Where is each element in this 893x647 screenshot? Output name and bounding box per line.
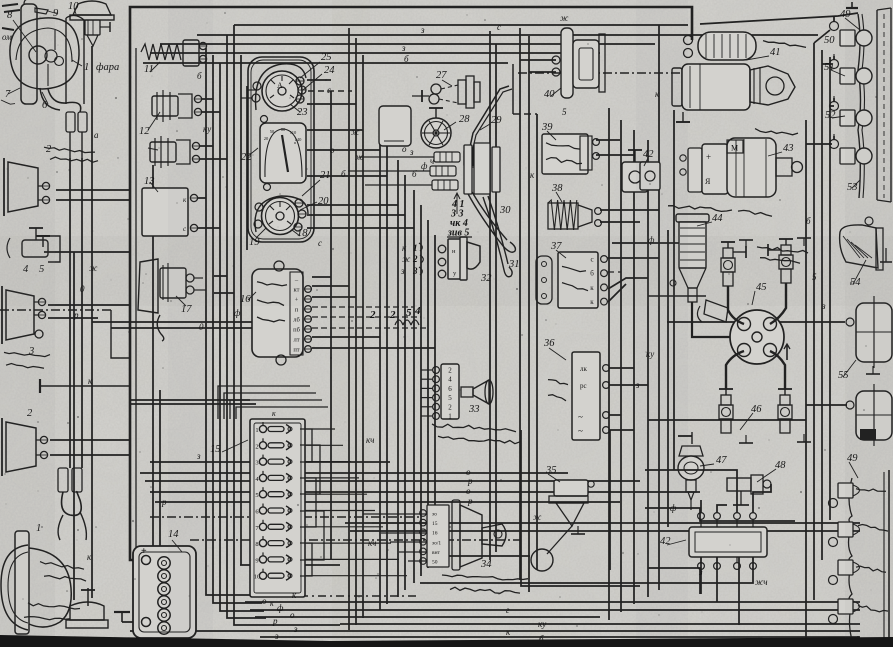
svg-text:23: 23 xyxy=(297,107,308,118)
svg-text:ф: ф xyxy=(277,603,284,613)
svg-text:р: р xyxy=(161,497,167,507)
svg-text:лт: лт xyxy=(293,337,299,344)
svg-text:36: 36 xyxy=(543,338,555,349)
svg-text:~: ~ xyxy=(578,426,583,436)
svg-text:фара: фара xyxy=(96,62,119,73)
svg-text:15: 15 xyxy=(432,521,438,527)
svg-text:лк: лк xyxy=(580,365,587,373)
svg-text:2: 2 xyxy=(448,367,452,375)
svg-text:10: 10 xyxy=(68,1,79,12)
svg-text:М: М xyxy=(731,144,738,153)
svg-text:Я: Я xyxy=(705,177,711,186)
svg-text:з: з xyxy=(409,147,414,157)
svg-text:2: 2 xyxy=(369,309,376,321)
svg-text:48: 48 xyxy=(775,460,786,471)
svg-text:35: 35 xyxy=(545,465,557,476)
svg-text:з: з xyxy=(293,624,298,634)
svg-text:2: 2 xyxy=(389,309,396,321)
svg-text:12: 12 xyxy=(139,126,150,137)
svg-text:р: р xyxy=(467,476,473,486)
svg-text:р: р xyxy=(467,496,473,506)
svg-text:к: к xyxy=(270,599,274,608)
svg-text:21: 21 xyxy=(320,170,331,181)
svg-text:с: с xyxy=(497,22,501,32)
svg-text:+: + xyxy=(141,546,147,557)
svg-text:г: г xyxy=(506,605,510,615)
svg-text:о: о xyxy=(262,596,267,606)
svg-text:41: 41 xyxy=(770,47,781,58)
svg-text:ф: ф xyxy=(234,308,241,318)
svg-text:пб: пб xyxy=(293,327,300,334)
svg-text:4: 4 xyxy=(448,376,452,384)
svg-text:50: 50 xyxy=(432,560,438,566)
svg-text:30: 30 xyxy=(499,205,511,216)
svg-text:110: 110 xyxy=(290,130,297,135)
svg-text:~: ~ xyxy=(578,412,583,422)
svg-text:5: 5 xyxy=(255,492,258,499)
svg-text:жч: жч xyxy=(755,577,768,587)
svg-text:2: 2 xyxy=(448,403,452,411)
svg-text:50: 50 xyxy=(270,129,275,134)
svg-text:80: 80 xyxy=(281,127,286,132)
svg-text:р: р xyxy=(73,310,79,320)
svg-text:16: 16 xyxy=(432,531,438,537)
svg-text:ч: ч xyxy=(430,156,434,166)
svg-text:52: 52 xyxy=(825,110,836,121)
svg-text:рс: рс xyxy=(580,382,587,390)
svg-text:+: + xyxy=(706,152,711,162)
svg-text:50: 50 xyxy=(824,35,835,46)
svg-text:20: 20 xyxy=(318,196,329,207)
svg-text:б: б xyxy=(412,169,417,179)
svg-text:ку: ку xyxy=(538,619,546,629)
svg-text:о: о xyxy=(466,486,471,496)
svg-text:8: 8 xyxy=(255,541,258,548)
svg-text:зо/1: зо/1 xyxy=(432,540,441,546)
svg-text:с: с xyxy=(327,85,331,95)
svg-text:з: з xyxy=(274,631,279,641)
svg-text:140: 140 xyxy=(295,137,303,142)
svg-text:6: 6 xyxy=(448,385,452,393)
svg-text:к: к xyxy=(272,409,276,418)
svg-text:а: а xyxy=(94,130,99,140)
svg-text:47: 47 xyxy=(716,455,727,466)
svg-text:б: б xyxy=(404,54,409,64)
svg-text:28: 28 xyxy=(459,114,470,125)
svg-text:25: 25 xyxy=(321,52,332,63)
svg-text:33: 33 xyxy=(468,404,480,415)
svg-text:зо: зо xyxy=(432,512,437,518)
svg-text:4: 4 xyxy=(414,305,421,317)
svg-text:А: А xyxy=(277,81,283,90)
svg-text:р: р xyxy=(272,616,278,626)
svg-text:3: 3 xyxy=(255,460,258,467)
svg-text:9: 9 xyxy=(255,557,258,564)
svg-text:пт: пт xyxy=(293,347,299,354)
svg-text:б: б xyxy=(806,216,811,226)
svg-text:44: 44 xyxy=(712,213,723,224)
svg-text:з: з xyxy=(401,43,406,53)
svg-text:з: з xyxy=(698,567,703,577)
svg-text:1: 1 xyxy=(84,62,89,73)
svg-text:внт: внт xyxy=(432,550,441,556)
svg-text:27: 27 xyxy=(436,70,447,81)
svg-text:п: п xyxy=(295,307,299,314)
svg-text:ж: ж xyxy=(560,13,569,23)
svg-text:38: 38 xyxy=(551,183,563,194)
svg-text:5: 5 xyxy=(406,307,412,319)
svg-text:5: 5 xyxy=(562,107,567,117)
svg-text:43: 43 xyxy=(783,143,794,154)
svg-text:ф: ф xyxy=(421,161,428,171)
svg-text:1: 1 xyxy=(448,413,452,421)
svg-text:29: 29 xyxy=(491,115,502,126)
svg-text:з: з xyxy=(420,25,425,35)
svg-text:1: 1 xyxy=(255,427,258,434)
svg-text:ж: ж xyxy=(533,512,542,522)
svg-text:о: о xyxy=(290,610,295,620)
svg-text:2: 2 xyxy=(255,443,258,450)
svg-text:лб: лб xyxy=(293,317,300,324)
svg-text:34: 34 xyxy=(480,559,492,570)
svg-text:5: 5 xyxy=(448,394,452,402)
svg-text:51: 51 xyxy=(824,62,835,73)
svg-text:о: о xyxy=(402,144,407,154)
svg-text:20: 20 xyxy=(264,136,269,141)
